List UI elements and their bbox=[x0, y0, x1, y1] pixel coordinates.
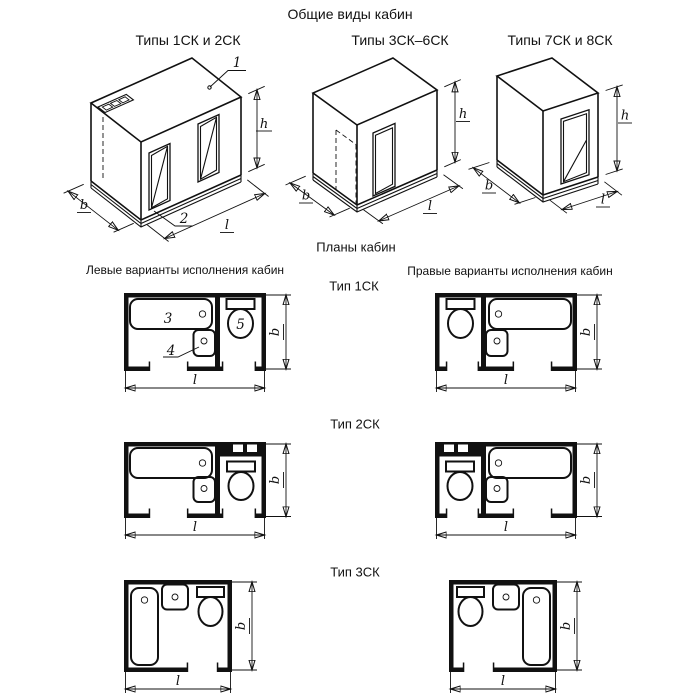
toilet bbox=[446, 462, 474, 501]
dimension-l: l bbox=[126, 371, 265, 392]
cabin-base-plinth bbox=[497, 160, 598, 202]
callout-4-number: 4 bbox=[166, 343, 176, 359]
dim-l-label: l bbox=[176, 674, 180, 689]
dimension-b: b bbox=[266, 295, 291, 369]
dim-l-label: l bbox=[504, 373, 508, 388]
washbasin bbox=[486, 477, 508, 502]
dim-l-label: l bbox=[193, 520, 197, 535]
toilet bbox=[447, 299, 475, 338]
bathtub bbox=[489, 448, 571, 478]
dimension-depth: b bbox=[469, 163, 536, 205]
dimension-b: b bbox=[557, 582, 582, 670]
dim-b-label: b bbox=[485, 179, 493, 194]
dim-b-label: b bbox=[579, 476, 594, 484]
dim-l-label: l bbox=[504, 520, 508, 535]
toilet bbox=[227, 462, 255, 501]
door-opening-left bbox=[149, 144, 170, 211]
dimension-length: l bbox=[549, 182, 622, 213]
dim-b-label: b bbox=[268, 328, 283, 336]
dim-h-label: h bbox=[260, 117, 268, 132]
plan-2sk-right: b l bbox=[435, 442, 602, 539]
door-opening bbox=[561, 110, 589, 184]
walls bbox=[449, 580, 557, 672]
dimension-l: l bbox=[451, 672, 556, 693]
dim-l-label: l bbox=[225, 218, 229, 233]
washbasin bbox=[486, 330, 508, 356]
dimension-height: h bbox=[606, 85, 632, 175]
door-hidden-left-face bbox=[336, 130, 356, 204]
plan-2sk-left: b l bbox=[124, 442, 291, 539]
dim-h-label: h bbox=[621, 109, 629, 124]
ventilation-block bbox=[435, 442, 486, 457]
bathtub bbox=[131, 588, 158, 665]
bathtub bbox=[130, 448, 212, 478]
toilet bbox=[457, 587, 484, 626]
washbasin bbox=[194, 330, 216, 356]
bathtub bbox=[489, 299, 571, 329]
washbasin bbox=[162, 585, 188, 610]
callout-3-bath: 3 bbox=[164, 311, 173, 327]
figure-canvas: 1 2 h b l bbox=[0, 0, 700, 700]
dimension-l: l bbox=[437, 518, 576, 539]
dimension-b: b bbox=[232, 582, 257, 670]
dimension-l: l bbox=[437, 371, 576, 392]
dim-l-label: l bbox=[428, 199, 432, 214]
dim-b-label: b bbox=[268, 476, 283, 484]
dimension-height: h bbox=[444, 80, 470, 167]
bathtub bbox=[523, 588, 550, 665]
dimension-l: l bbox=[126, 518, 265, 539]
door-opening-right bbox=[198, 115, 219, 183]
iso-view-3sk-6sk: b l h bbox=[286, 58, 471, 224]
washbasin bbox=[194, 477, 216, 502]
dimension-b: b bbox=[266, 444, 291, 517]
dimension-b: b bbox=[577, 444, 602, 517]
dim-l-label: l bbox=[193, 373, 197, 388]
walls bbox=[124, 580, 232, 672]
dim-h-label: h bbox=[459, 107, 467, 122]
dimension-b: b bbox=[577, 295, 602, 369]
iso-view-7sk-8sk: b l h bbox=[469, 58, 633, 213]
dimension-depth: b bbox=[64, 184, 134, 232]
callout-5-toilet: 5 bbox=[236, 317, 245, 333]
plan-3sk-left: b l bbox=[124, 580, 257, 693]
dim-b-label: b bbox=[579, 328, 594, 336]
callout-1-number: 1 bbox=[233, 55, 242, 71]
dim-b-label: b bbox=[80, 198, 88, 213]
plan-3sk-right: b l bbox=[449, 580, 582, 693]
dim-b-label: b bbox=[559, 622, 574, 630]
dim-b-label: b bbox=[302, 189, 310, 204]
callout-2-number: 2 bbox=[179, 211, 189, 227]
plan-1sk-left: 3 5 4 b l bbox=[124, 293, 291, 392]
toilet bbox=[197, 587, 224, 626]
ventilation-block bbox=[215, 442, 266, 457]
dimension-height: h bbox=[248, 86, 272, 171]
dim-b-label: b bbox=[234, 622, 249, 630]
plan-1sk-right: b l bbox=[435, 293, 602, 392]
dimension-l: l bbox=[126, 672, 231, 693]
figure-page: Общие виды кабин Типы 1СК и 2СК Типы 3СК… bbox=[0, 0, 700, 700]
dim-l-label: l bbox=[601, 193, 605, 208]
dim-l-label: l bbox=[501, 674, 505, 689]
callout-1-roof: 1 bbox=[208, 55, 246, 89]
washbasin bbox=[493, 585, 519, 610]
door-opening-front bbox=[373, 123, 395, 196]
iso-view-1sk-2sk: 1 2 h b l bbox=[64, 55, 272, 242]
